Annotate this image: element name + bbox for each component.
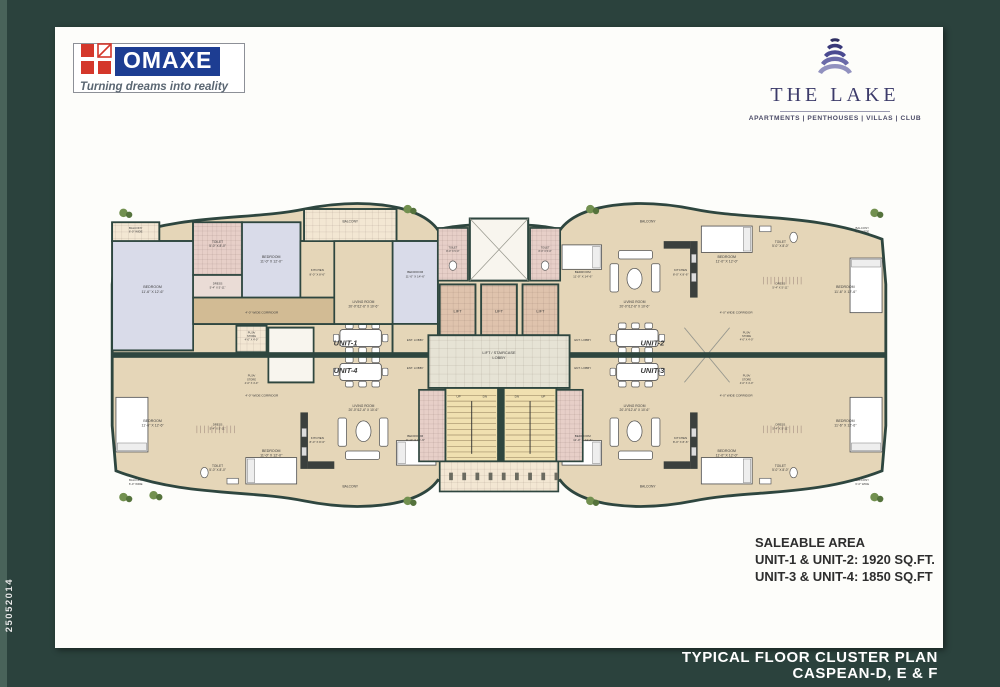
svg-text:KITCHEN8'-0" X 8'-6": KITCHEN8'-0" X 8'-6" (673, 436, 689, 444)
svg-text:BALCONY6'-0" WIDE: BALCONY6'-0" WIDE (855, 478, 869, 486)
svg-text:ENT. LOBBY: ENT. LOBBY (574, 366, 591, 370)
svg-text:BEDROOM11'-0" X 14'-6": BEDROOM11'-0" X 14'-6" (406, 270, 425, 278)
saleable-unit34: UNIT-3 & UNIT-4: 1850 SQ.FT (755, 568, 935, 585)
svg-text:BEDROOM11'-0" X 14'-6": BEDROOM11'-0" X 14'-6" (406, 434, 425, 442)
lake-wordmark: THE LAKE (745, 84, 925, 107)
core-toilet-bottom-right (556, 390, 582, 462)
saleable-heading: SALEABLE AREA (755, 534, 935, 551)
svg-text:BEDROOM11'-0" X 12'-0": BEDROOM11'-0" X 12'-0" (716, 449, 739, 458)
caption-line2: CASPEAN-D, E & F (682, 666, 938, 682)
svg-text:UNIT-2: UNIT-2 (641, 339, 666, 348)
core-toilet-bottom-left (419, 390, 445, 462)
room-living (334, 241, 392, 324)
core-toilet-right (530, 228, 560, 281)
plant-icon (119, 493, 132, 502)
the-lake-logo: THE LAKE APARTMENTS | PENTHOUSES | VILLA… (745, 33, 925, 122)
room-bedroom-a (112, 241, 193, 350)
svg-text:ENT. LOBBY: ENT. LOBBY (407, 366, 424, 370)
svg-text:DN: DN (515, 394, 519, 398)
svg-text:BALCONY6'-0" WIDE: BALCONY6'-0" WIDE (855, 226, 869, 234)
svg-text:UP: UP (456, 394, 460, 398)
lake-divider (780, 111, 890, 112)
scan-side-code: 25052014 (4, 578, 15, 632)
plant-icon (119, 209, 132, 218)
svg-text:BEDROOM11'-0" X 12'-0": BEDROOM11'-0" X 12'-0" (716, 255, 739, 264)
core-bottom-ledge (440, 461, 559, 491)
svg-text:DN: DN (483, 394, 487, 398)
svg-text:ENT. LOBBY: ENT. LOBBY (407, 338, 424, 342)
svg-text:BEDROOM11'-6" X 12'-6": BEDROOM11'-6" X 12'-6" (834, 285, 857, 294)
omaxe-wordmark: OMAXE (115, 47, 220, 76)
svg-text:UNIT-1: UNIT-1 (334, 339, 358, 348)
svg-text:BALCONY: BALCONY (342, 219, 358, 223)
omaxe-grid-icon (80, 43, 112, 80)
sheet-caption: TYPICAL FLOOR CLUSTER PLAN CASPEAN-D, E … (682, 650, 938, 682)
lake-arcs-icon (805, 64, 865, 81)
saleable-unit12: UNIT-1 & UNIT-2: 1920 SQ.FT. (755, 551, 935, 568)
svg-text:4'-0" WIDE CORRIDOR: 4'-0" WIDE CORRIDOR (245, 311, 279, 315)
room-toilet (193, 222, 242, 275)
saleable-area-note: SALEABLE AREA UNIT-1 & UNIT-2: 1920 SQ.F… (755, 534, 935, 585)
room-bedroom-c (393, 241, 438, 324)
svg-text:LIFT: LIFT (454, 309, 463, 314)
svg-text:KITCHEN8'-0" X 8'-6": KITCHEN8'-0" X 8'-6" (673, 268, 689, 276)
svg-text:BALCONY: BALCONY (640, 485, 656, 489)
svg-text:BEDROOM11'-0" X 14'-6": BEDROOM11'-0" X 14'-6" (573, 270, 592, 278)
svg-text:ENT. LOBBY: ENT. LOBBY (574, 338, 591, 342)
svg-text:4'-0" WIDE CORRIDOR: 4'-0" WIDE CORRIDOR (720, 393, 754, 397)
omaxe-logo: OMAXE Turning dreams into reality (73, 43, 245, 93)
caption-line1: TYPICAL FLOOR CLUSTER PLAN (682, 650, 938, 666)
svg-text:LIFT: LIFT (536, 309, 545, 314)
floor-plan-svg: BALCONY6'-0" WIDEBEDROOM11'-6" X 12'-6"T… (83, 179, 915, 531)
svg-text:BALCONY: BALCONY (640, 219, 656, 223)
plant-icon (149, 491, 162, 500)
omaxe-tagline: Turning dreams into reality (80, 81, 238, 93)
svg-text:BALCONY: BALCONY (342, 485, 358, 489)
svg-text:UNIT-3: UNIT-3 (641, 366, 666, 375)
room-balcony-top (304, 209, 396, 241)
svg-text:KITCHEN8'-0" X 8'-6": KITCHEN8'-0" X 8'-6" (310, 268, 326, 276)
svg-text:KITCHEN8'-0" X 8'-6": KITCHEN8'-0" X 8'-6" (310, 436, 326, 444)
svg-text:UP: UP (541, 394, 545, 398)
plant-icon (870, 493, 883, 502)
plan-sheet-page: OMAXE Turning dreams into reality THE LA… (55, 27, 943, 648)
svg-text:BEDROOM11'-0" X 12'-0": BEDROOM11'-0" X 12'-0" (260, 449, 283, 458)
svg-text:LIFT: LIFT (495, 309, 504, 314)
floor-plan: BALCONY6'-0" WIDEBEDROOM11'-6" X 12'-6"T… (83, 179, 915, 531)
svg-text:4'-0" WIDE CORRIDOR: 4'-0" WIDE CORRIDOR (245, 393, 279, 397)
svg-text:BALCONY6'-0" WIDE: BALCONY6'-0" WIDE (129, 478, 143, 486)
plant-icon (870, 209, 883, 218)
svg-text:BEDROOM11'-6" X 12'-6": BEDROOM11'-6" X 12'-6" (142, 419, 165, 428)
svg-text:BEDROOM11'-6" X 12'-6": BEDROOM11'-6" X 12'-6" (142, 285, 165, 294)
svg-text:BEDROOM11'-0" X 12'-0": BEDROOM11'-0" X 12'-0" (260, 255, 283, 264)
svg-text:4'-0" WIDE CORRIDOR: 4'-0" WIDE CORRIDOR (720, 311, 754, 315)
lift-staircase-lobby (428, 335, 569, 388)
lake-tagline: APARTMENTS | PENTHOUSES | VILLAS | CLUB (745, 115, 925, 122)
core-toilet-left (438, 228, 468, 281)
svg-text:BEDROOM11'-6" X 12'-6": BEDROOM11'-6" X 12'-6" (834, 419, 857, 428)
svg-text:BALCONY6'-0" WIDE: BALCONY6'-0" WIDE (129, 226, 143, 234)
svg-text:UNIT-4: UNIT-4 (334, 366, 359, 375)
svg-text:BEDROOM11'-0" X 14'-6": BEDROOM11'-0" X 14'-6" (573, 434, 592, 442)
